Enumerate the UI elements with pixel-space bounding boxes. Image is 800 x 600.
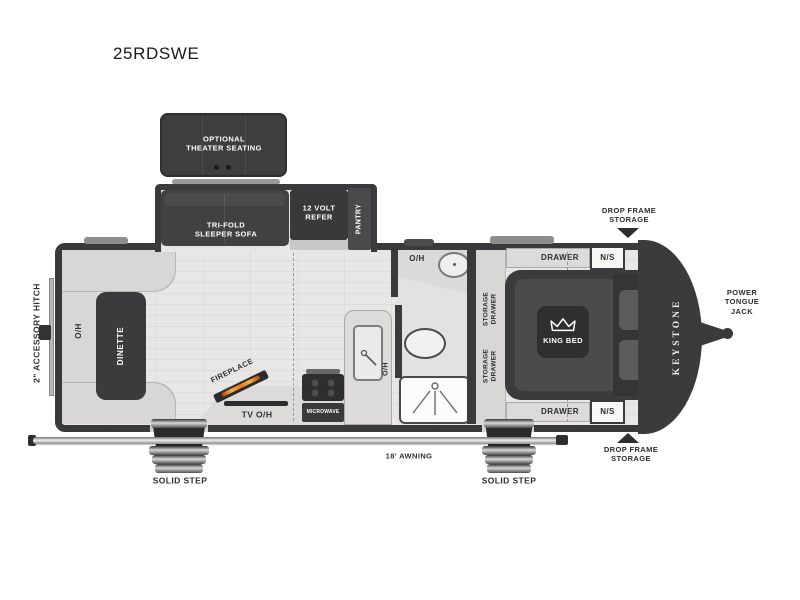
nightstand-top: N/S bbox=[590, 246, 625, 270]
drop-frame-storage-bottom-label: DROP FRAME STORAGE bbox=[589, 445, 673, 464]
accessory-hitch-label: 2" ACCESSORY HITCH bbox=[32, 283, 43, 383]
drawer-bottom-label: DRAWER bbox=[541, 407, 579, 417]
cupholder-icon bbox=[226, 165, 231, 170]
theater-seating-label: OPTIONAL THEATER SEATING bbox=[186, 135, 262, 154]
crown-icon bbox=[549, 318, 577, 333]
storage-drawer-lower-label: STORAGE DRAWER bbox=[483, 349, 500, 383]
refer-counter bbox=[290, 240, 348, 250]
sofa-backrest bbox=[165, 193, 285, 206]
drawer-top-label: DRAWER bbox=[541, 253, 579, 263]
bath-wall bbox=[395, 305, 402, 378]
microwave-label: MICROWAVE bbox=[307, 409, 340, 415]
arrow-up-icon bbox=[617, 433, 639, 443]
shower bbox=[399, 376, 470, 424]
solid-step-right-label: SOLID STEP bbox=[482, 476, 537, 487]
window-trim bbox=[490, 236, 554, 244]
stove bbox=[302, 374, 344, 401]
window-trim bbox=[84, 237, 128, 244]
dinette-bench bbox=[62, 250, 176, 292]
king-bed: KING BED bbox=[505, 270, 653, 400]
toilet bbox=[404, 328, 446, 359]
nightstand-top-label: N/S bbox=[600, 253, 615, 263]
awning-label: 18' AWNING bbox=[386, 451, 433, 460]
front-cap bbox=[638, 240, 702, 434]
solid-step-left-label: SOLID STEP bbox=[153, 476, 208, 487]
faucet-icon bbox=[355, 327, 381, 379]
cupholder-icon bbox=[214, 165, 219, 170]
awning-end-cap bbox=[556, 435, 568, 445]
king-bed-plate: KING BED bbox=[537, 306, 589, 358]
vent-trim bbox=[404, 239, 434, 246]
tv bbox=[224, 401, 288, 406]
slide-travel-line bbox=[293, 253, 294, 421]
sink-overhead-label: O/H bbox=[383, 362, 392, 376]
bedroom-steps bbox=[476, 250, 506, 424]
bedroom-wall bbox=[467, 250, 476, 424]
pantry-label: PANTRY bbox=[356, 204, 365, 234]
floorplan: 25RDSWE OPTIONAL THEATER SEATING O/H DIN… bbox=[0, 0, 800, 600]
nightstand-bottom-label: N/S bbox=[600, 407, 615, 417]
arrow-down-icon bbox=[617, 228, 639, 238]
page-title: 25RDSWE bbox=[113, 44, 199, 64]
dinette-overhead-label: O/H bbox=[74, 323, 84, 338]
tv-overhead-label: TV O/H bbox=[242, 410, 273, 421]
brand-label: KEYSTONE bbox=[672, 299, 682, 376]
refrigerator-label: 12 VOLT REFER bbox=[303, 204, 336, 223]
storage-drawer-upper-label: STORAGE DRAWER bbox=[483, 292, 500, 326]
shower-spray-icon bbox=[401, 378, 468, 422]
drain-icon bbox=[453, 263, 456, 266]
solid-step-left bbox=[148, 419, 210, 473]
burner-icon bbox=[302, 374, 344, 401]
dinette-label: DINETTE bbox=[116, 327, 126, 365]
awning-rail bbox=[33, 437, 563, 444]
microwave: MICROWAVE bbox=[302, 403, 344, 422]
bath-wall bbox=[391, 250, 398, 297]
tongue-ball bbox=[722, 328, 733, 339]
power-tongue-jack-label: POWER TONGUE JACK bbox=[708, 288, 776, 316]
nightstand-bottom: N/S bbox=[590, 400, 625, 424]
king-bed-label: KING BED bbox=[543, 336, 583, 345]
drop-frame-storage-top-label: DROP FRAME STORAGE bbox=[589, 206, 669, 225]
bath-sink bbox=[438, 252, 470, 278]
solid-step-right bbox=[481, 419, 537, 473]
vanity-overhead-label: O/H bbox=[409, 254, 424, 264]
kitchen-sink bbox=[353, 325, 383, 381]
sleeper-sofa-label: TRI-FOLD SLEEPER SOFA bbox=[195, 221, 257, 240]
